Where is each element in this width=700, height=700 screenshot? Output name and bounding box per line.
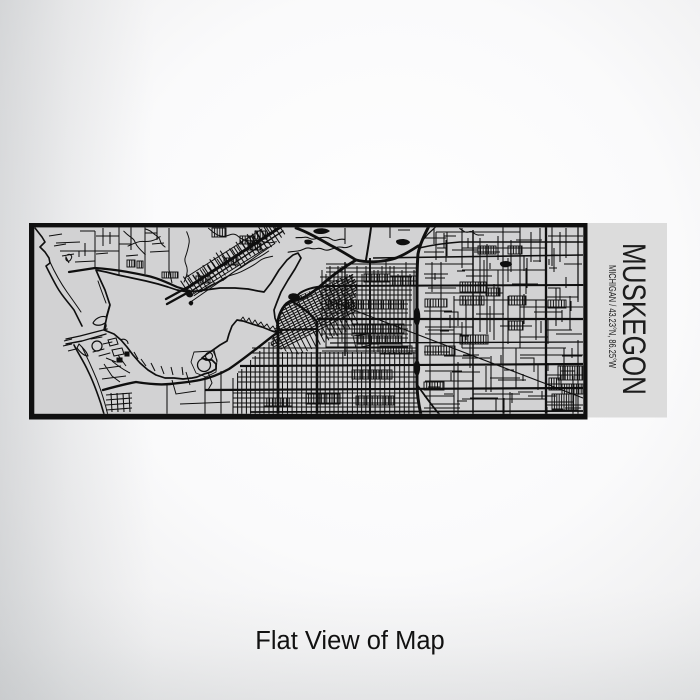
svg-text:MICHIGAN / 43.23°N, 86.25°W: MICHIGAN / 43.23°N, 86.25°W bbox=[606, 265, 618, 368]
svg-text:Flat View of Map: Flat View of Map bbox=[255, 627, 444, 655]
svg-text:MUSKEGON: MUSKEGON bbox=[616, 243, 652, 395]
